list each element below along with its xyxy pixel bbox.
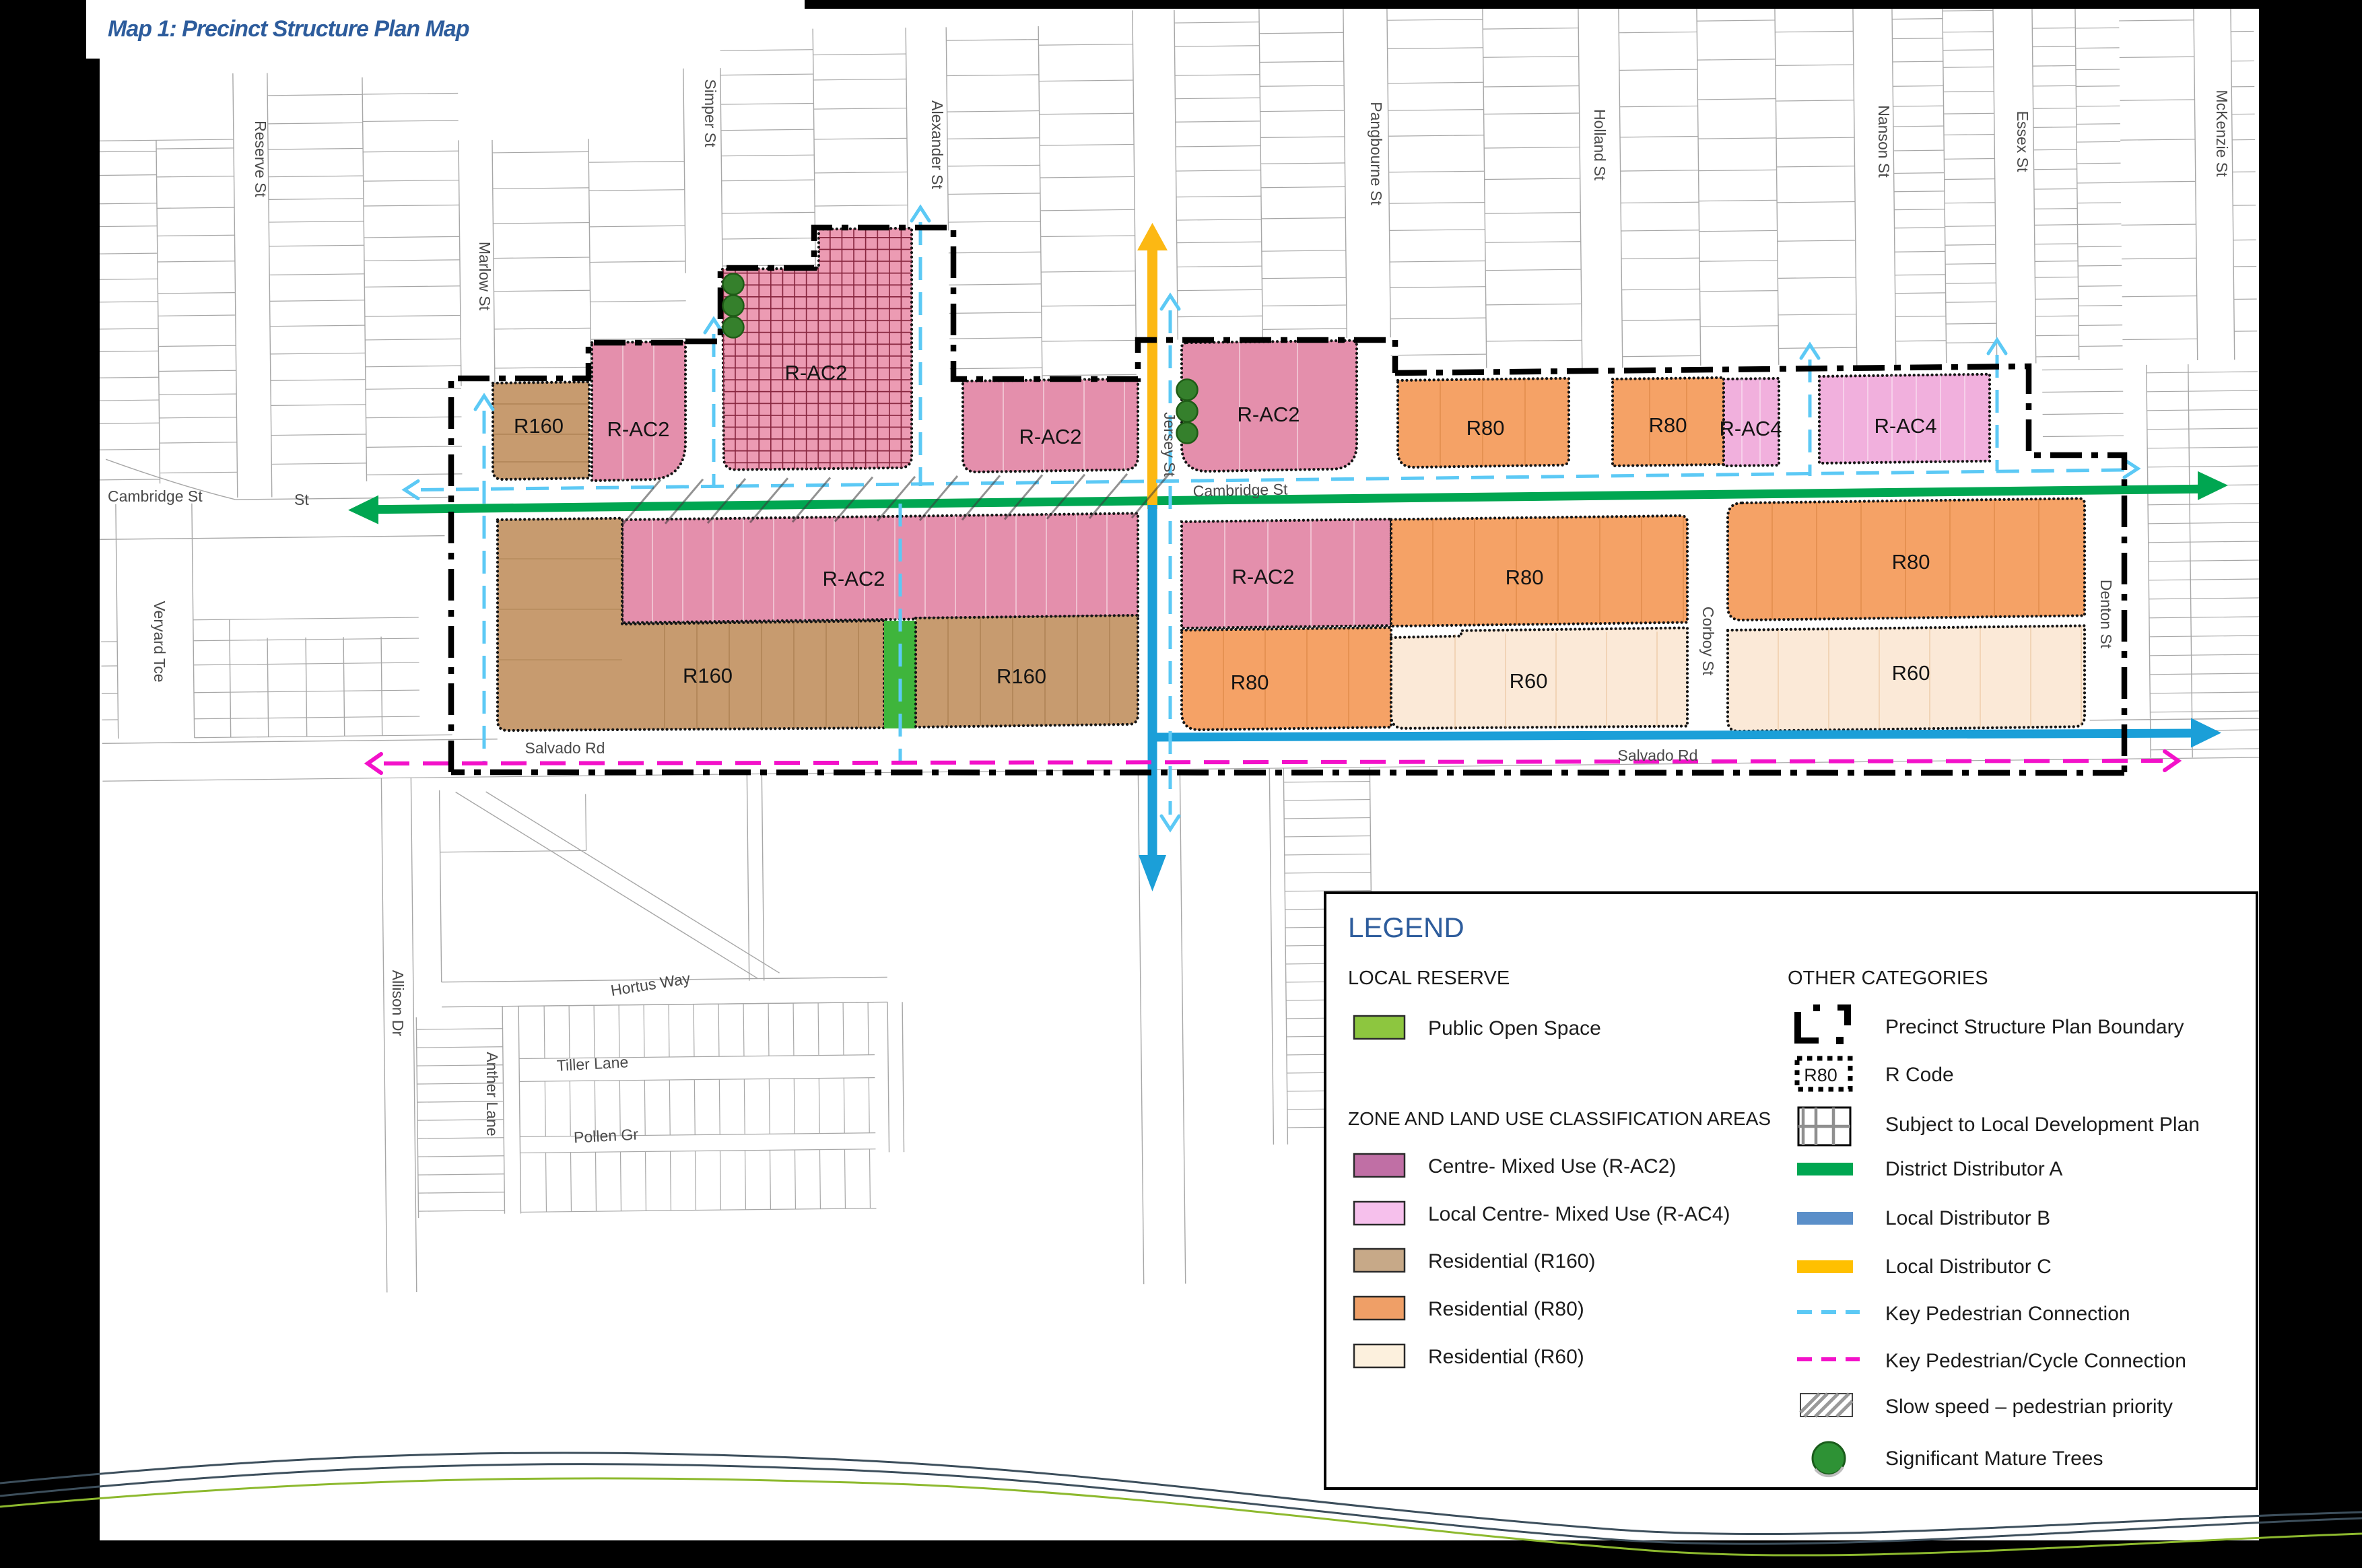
svg-text:Subject to Local Development P: Subject to Local Development Plan (1885, 1114, 2200, 1136)
svg-text:R-AC2: R-AC2 (1231, 565, 1294, 588)
svg-text:Tiller Lane: Tiller Lane (556, 1053, 629, 1075)
svg-text:Essex St: Essex St (2014, 111, 2031, 172)
svg-text:ZONE AND LAND USE CLASSIFICATI: ZONE AND LAND USE CLASSIFICATION AREAS (1348, 1108, 1771, 1129)
svg-text:District Distributor A: District Distributor A (1885, 1158, 2062, 1180)
svg-text:Centre- Mixed Use (R-AC2): Centre- Mixed Use (R-AC2) (1428, 1155, 1676, 1178)
svg-text:Salvado Rd: Salvado Rd (1618, 747, 1698, 764)
svg-text:R160: R160 (683, 664, 733, 687)
svg-text:Marlow St: Marlow St (476, 242, 494, 311)
svg-text:Reserve St: Reserve St (252, 121, 269, 197)
svg-text:R160: R160 (514, 414, 564, 438)
svg-text:Anther Lane: Anther Lane (483, 1052, 501, 1136)
svg-text:R-AC4: R-AC4 (1874, 414, 1936, 438)
svg-text:R-AC2: R-AC2 (1019, 425, 1081, 448)
svg-text:McKenzie St: McKenzie St (2213, 90, 2231, 177)
svg-text:Pangbourne St: Pangbourne St (1368, 102, 1385, 205)
svg-text:Allison Dr: Allison Dr (389, 970, 407, 1037)
svg-text:Residential (R60): Residential (R60) (1428, 1346, 1584, 1368)
svg-text:Pollen Gr: Pollen Gr (573, 1125, 638, 1146)
svg-text:OTHER CATEGORIES: OTHER CATEGORIES (1788, 967, 1988, 989)
svg-text:Map 1: Precinct Structure Plan: Map 1: Precinct Structure Plan Map (108, 16, 469, 42)
svg-text:R Code: R Code (1885, 1064, 1954, 1086)
svg-text:Cambridge St: Cambridge St (108, 487, 203, 505)
svg-text:R-AC2: R-AC2 (607, 417, 669, 441)
svg-text:R-AC2: R-AC2 (784, 361, 847, 384)
svg-text:Alexander St: Alexander St (929, 100, 946, 189)
svg-text:Residential (R160): Residential (R160) (1428, 1250, 1595, 1272)
svg-text:R-AC2: R-AC2 (1237, 403, 1300, 426)
svg-text:R80: R80 (1649, 413, 1687, 437)
svg-text:Public Open Space: Public Open Space (1428, 1017, 1601, 1039)
svg-text:Precinct Structure Plan Bounda: Precinct Structure Plan Boundary (1885, 1016, 2184, 1038)
svg-text:R-AC2: R-AC2 (822, 567, 885, 590)
svg-text:Local Centre- Mixed Use (R-AC4: Local Centre- Mixed Use (R-AC4) (1428, 1203, 1730, 1225)
svg-text:Significant Mature Trees: Significant Mature Trees (1885, 1447, 2103, 1470)
svg-text:R80: R80 (1506, 566, 1544, 589)
svg-text:LOCAL RESERVE: LOCAL RESERVE (1348, 967, 1510, 989)
svg-text:LEGEND: LEGEND (1348, 912, 1464, 943)
svg-text:R60: R60 (1510, 669, 1548, 693)
svg-text:Nanson St: Nanson St (1875, 105, 1893, 178)
svg-text:R80: R80 (1231, 671, 1269, 694)
svg-text:R-AC4: R-AC4 (1719, 417, 1782, 440)
svg-text:R80: R80 (1804, 1065, 1837, 1085)
svg-text:R60: R60 (1892, 661, 1930, 685)
svg-text:Residential (R80): Residential (R80) (1428, 1298, 1584, 1320)
svg-text:Jersey St: Jersey St (1161, 412, 1178, 477)
svg-text:Cambridge St: Cambridge St (1192, 481, 1288, 500)
svg-text:Veryard Tce: Veryard Tce (151, 601, 168, 682)
svg-text:Denton St: Denton St (2097, 580, 2115, 649)
svg-text:Holland St: Holland St (1591, 109, 1609, 181)
svg-text:Local Distributor C: Local Distributor C (1885, 1256, 2052, 1278)
svg-text:Local Distributor B: Local Distributor B (1885, 1207, 2050, 1229)
svg-text:R80: R80 (1466, 416, 1505, 440)
svg-text:R80: R80 (1892, 550, 1930, 574)
svg-text:Simper St: Simper St (702, 79, 719, 148)
svg-text:R160: R160 (997, 664, 1046, 688)
svg-text:Key Pedestrian Connection: Key Pedestrian Connection (1885, 1303, 2130, 1325)
svg-text:Corboy St: Corboy St (1699, 607, 1717, 676)
svg-text:Key Pedestrian/Cycle Connectio: Key Pedestrian/Cycle Connection (1885, 1350, 2186, 1372)
svg-text:Slow speed – pedestrian priori: Slow speed – pedestrian priority (1885, 1396, 2173, 1418)
svg-text:Salvado Rd: Salvado Rd (525, 739, 605, 757)
svg-text:St: St (294, 491, 309, 508)
